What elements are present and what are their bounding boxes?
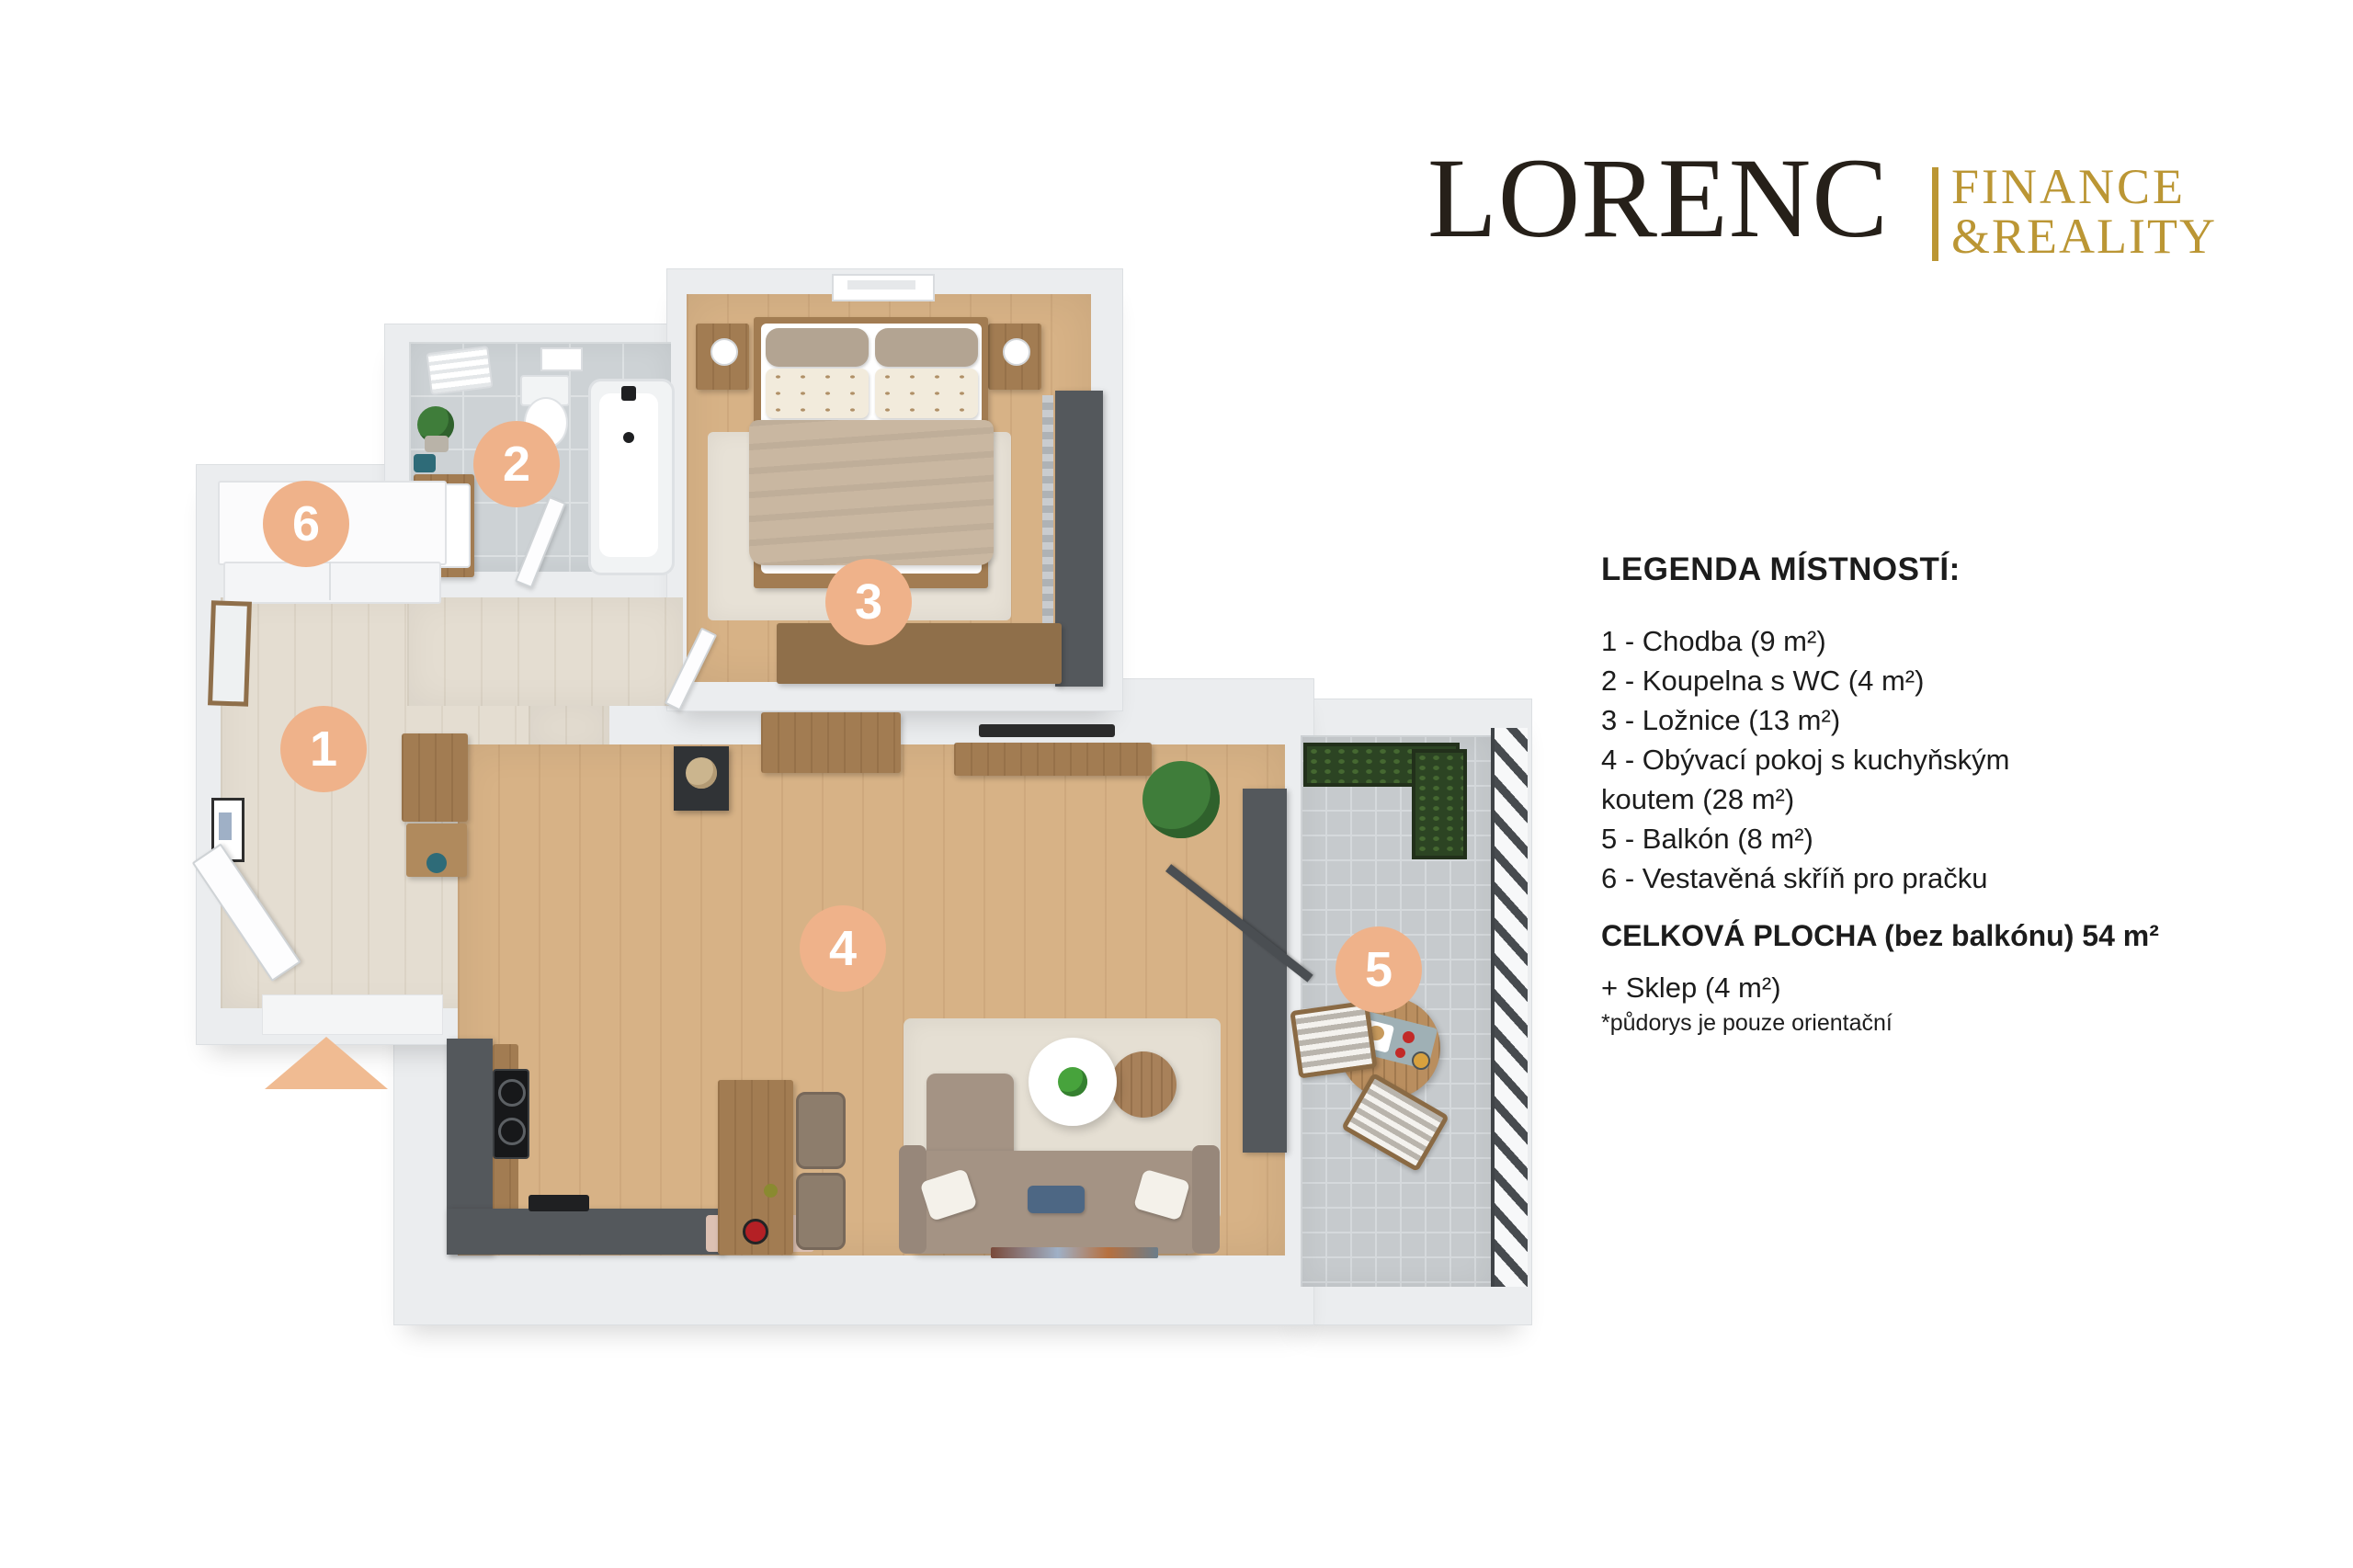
bathroom-mirror-cabinet — [540, 347, 583, 371]
room-badge-balcony: 5 — [1336, 926, 1422, 1013]
bathtub-inner — [599, 393, 658, 557]
wall-radiator — [979, 724, 1115, 737]
palm-plant — [1142, 761, 1220, 838]
hall-picture-art — [219, 812, 232, 840]
room-badge-bathroom: 2 — [473, 421, 560, 507]
room-badge-number: 1 — [310, 721, 337, 778]
kitchen-sink — [529, 1195, 589, 1211]
bed-pillow-right — [875, 369, 978, 418]
closet-door-split — [329, 562, 331, 600]
media-console — [954, 743, 1152, 776]
room-badge-hallway: 1 — [280, 706, 367, 792]
legend-item-hallway: 1 - Chodba (9 m²) — [1601, 621, 2199, 661]
bedroom-dresser — [777, 623, 1062, 684]
living-sideboard — [761, 712, 901, 773]
hall-mirror — [208, 600, 252, 706]
legend-item-balcony: 5 - Balkón (8 m²) — [1601, 819, 2199, 858]
room-badge-number: 3 — [855, 574, 882, 631]
balcony-cup — [1412, 1051, 1430, 1070]
coffee-table-plant — [1058, 1067, 1087, 1096]
logo-division-line2: &REALITY — [1951, 211, 2217, 261]
floor-plan: 1 2 3 4 5 6 — [0, 0, 1563, 1379]
kitchen-counter-bottom — [447, 1209, 722, 1255]
towel-radiator — [426, 346, 493, 395]
room-badge-bedroom: 3 — [825, 559, 912, 645]
hall-bag — [426, 853, 447, 873]
cooktop-burner-1 — [498, 1079, 526, 1107]
legend-total-area: CELKOVÁ PLOCHA (bez balkónu) 54 m² — [1601, 916, 2199, 955]
bed-pillow-left — [766, 369, 869, 418]
living-doorway-floor — [529, 706, 609, 748]
entry-arrow — [265, 1037, 388, 1089]
room-badge-number: 6 — [292, 495, 320, 552]
plant-stand-pot — [686, 757, 717, 789]
balcony-tomato-1 — [1403, 1031, 1415, 1043]
bedroom-wardrobe — [1055, 391, 1103, 687]
sofa-armrest-right — [1192, 1145, 1220, 1254]
dining-bowl-olive — [764, 1184, 778, 1198]
bathtub-drain — [623, 432, 634, 443]
bathtub-faucet — [621, 386, 636, 401]
logo-divider-bar — [1932, 167, 1938, 261]
cooktop-burner-2 — [498, 1118, 526, 1145]
bedroom-window-vent — [847, 280, 915, 290]
company-logo: LORENC FINANCE &REALITY — [1427, 154, 2255, 274]
legend-item-closet: 6 - Vestavěná skříň pro pračku — [1601, 858, 2199, 898]
room-badge-number: 4 — [829, 920, 857, 977]
bedside-lamp-right — [1003, 338, 1030, 366]
logo-brand-text: LORENC — [1427, 142, 1889, 256]
tv-wall-unit — [1243, 789, 1287, 1153]
dining-bowl-red — [743, 1219, 768, 1244]
magazine — [991, 1247, 1158, 1258]
legend-title: LEGENDA MÍSTNOSTÍ: — [1601, 551, 2199, 588]
legend-disclaimer: *půdorys je pouze orientační — [1601, 1008, 2199, 1038]
bathroom-plant-pot — [425, 436, 449, 452]
balcony-railing — [1491, 728, 1528, 1287]
laundry-bin — [414, 454, 436, 472]
bedside-lamp-left — [710, 338, 738, 366]
room-badge-number: 5 — [1365, 941, 1392, 998]
room-badge-living-room: 4 — [800, 905, 886, 992]
legend-item-living-room-wrap: koutem (28 m²) — [1601, 779, 2199, 819]
builtin-closet-doors — [223, 562, 441, 604]
bed-cushion-left — [766, 328, 869, 367]
room-badge-closet: 6 — [263, 481, 349, 567]
corridor-floor — [407, 597, 683, 706]
balcony-planter-vertical — [1412, 749, 1467, 859]
balcony-chair-1 — [1290, 1000, 1377, 1078]
room-badge-number: 2 — [503, 436, 530, 493]
balcony-tomato-2 — [1395, 1048, 1405, 1058]
legend-item-living-room: 4 - Obývací pokoj s kuchyňským — [1601, 740, 2199, 779]
bed-blanket — [749, 420, 994, 565]
entry-threshold — [262, 994, 443, 1035]
dining-chair-2 — [796, 1173, 846, 1250]
bed-cushion-right — [875, 328, 978, 367]
legend-cellar: + Sklep (4 m²) — [1601, 970, 2199, 1006]
sofa-armrest-left — [899, 1145, 926, 1254]
dining-chair-1 — [796, 1092, 846, 1169]
legend-item-bathroom: 2 - Koupelna s WC (4 m²) — [1601, 661, 2199, 700]
legend-item-bedroom: 3 - Ložnice (13 m²) — [1601, 700, 2199, 740]
logo-division-line1: FINANCE — [1951, 162, 2186, 211]
coffee-table-wood — [1110, 1051, 1176, 1118]
sofa-pillow-blue — [1028, 1186, 1085, 1213]
hall-cabinet — [402, 733, 468, 822]
room-legend: LEGENDA MÍSTNOSTÍ: 1 - Chodba (9 m²) 2 -… — [1601, 551, 2199, 1038]
